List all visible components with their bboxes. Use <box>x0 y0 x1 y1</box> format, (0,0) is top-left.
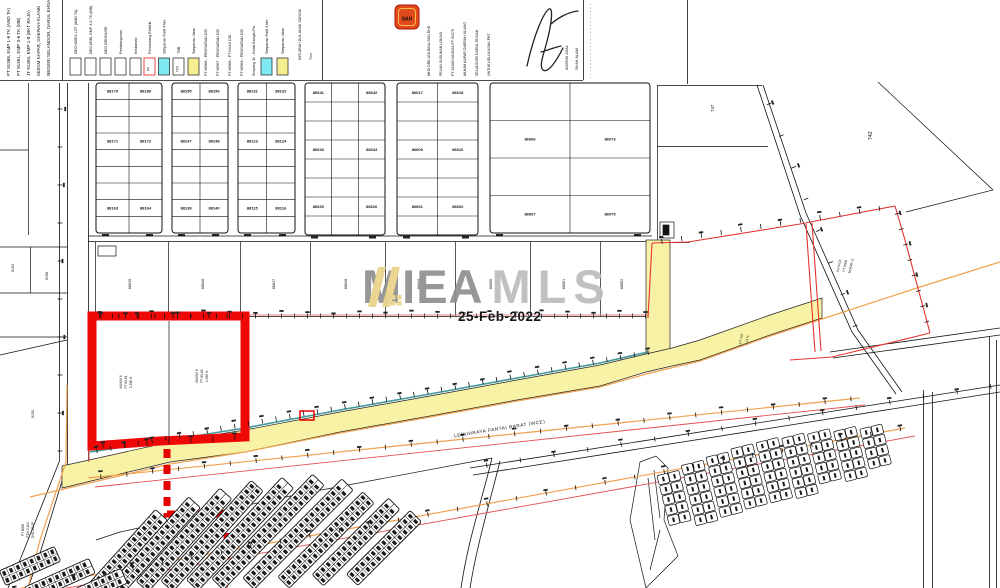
map-geometry <box>486 463 487 468</box>
lot-number: 86633 <box>313 147 325 152</box>
legend-caption: DEG AREL EMP 3-6 TK (MB) <box>89 6 93 54</box>
left-parcel-label: 9152 <box>31 410 35 418</box>
legend-caption: DEG+AREL LOT (AND TA) <box>74 10 78 54</box>
survey-annotation-mark <box>667 412 672 414</box>
lot-grid-block: 866178661886609866108660186602 <box>397 83 478 239</box>
map-line <box>878 82 993 212</box>
map-geometry <box>427 389 428 394</box>
lot-number: 88180 <box>140 89 152 94</box>
survey-annotation-mark <box>778 219 783 221</box>
map-geometry <box>721 230 722 235</box>
map-geometry <box>587 447 588 452</box>
survey-annotation-mark <box>602 477 607 480</box>
parcel-row-label: 86650 <box>489 279 493 290</box>
survey-annotation-mark <box>357 446 362 448</box>
survey-annotation-mark <box>135 312 139 314</box>
map-geometry <box>621 442 622 447</box>
survey-annotation-mark <box>661 465 666 468</box>
lot-number: 86634 <box>366 147 378 152</box>
survey-annotation-mark <box>539 309 543 311</box>
lot-grid-block: 881798818088171881728816388164 <box>96 83 162 237</box>
map-geometry <box>403 236 410 239</box>
survey-annotation-mark <box>551 450 556 452</box>
survey-annotation-mark <box>699 231 704 233</box>
lot-number: 86617 <box>412 90 424 95</box>
map-geometry <box>841 293 845 295</box>
survey-annotation-mark <box>149 310 153 312</box>
survey-annotation-mark <box>887 397 892 399</box>
map-geometry <box>554 452 555 457</box>
map-geometry <box>760 224 761 229</box>
map-line <box>663 225 669 235</box>
map-geometry <box>804 198 808 200</box>
subject-plot-left-label: PT 69-61 <box>124 375 128 388</box>
survey-annotation-mark <box>857 206 862 208</box>
parcel-row-label: 86652 <box>620 279 624 290</box>
map-geometry <box>496 234 503 237</box>
legend-caption: PT 66567 - PENGAIRAN DID <box>216 29 220 76</box>
map-geometry <box>317 409 318 414</box>
survey-annotation-mark <box>616 418 621 420</box>
legend-caption: Simpanan Jalan <box>192 28 196 54</box>
survey-annotation-mark <box>253 312 257 314</box>
survey-annotation-mark <box>753 418 758 420</box>
map-line <box>830 328 1000 352</box>
map-geometry <box>688 431 689 436</box>
legend-caption: PT 66566 - PENGAIRAN DID <box>204 29 208 76</box>
survey-annotation-mark <box>543 489 548 492</box>
lot-number: 88116 <box>275 205 287 210</box>
map-geometry <box>428 512 429 517</box>
survey-annotation-mark <box>207 312 211 314</box>
map-geometry <box>358 402 359 407</box>
survey-annotation-mark <box>565 311 569 313</box>
survey-annotation-mark <box>99 312 103 314</box>
legend-caption: UNTUK KELULUSAN PBT <box>487 32 491 76</box>
map-geometry <box>244 234 251 237</box>
map-geometry <box>820 215 821 220</box>
survey-annotation-mark <box>305 449 310 451</box>
legend-yellow-box <box>277 58 288 75</box>
survey-annotation-mark <box>590 356 595 359</box>
map-line <box>833 335 1000 358</box>
subject-plot-left-label: 1.338 H. <box>129 376 133 388</box>
map-line <box>895 206 930 333</box>
lot-number: 88156 <box>208 89 220 94</box>
survey-annotation-mark <box>314 406 319 409</box>
legend-caption: Simpanan Parit 4 Me. <box>265 19 269 54</box>
survey-annotation-mark <box>101 441 105 443</box>
survey-annotation-mark <box>452 383 457 386</box>
survey-annotation-mark <box>846 290 849 295</box>
map-geometry <box>469 382 470 387</box>
map-geometry <box>990 384 991 389</box>
survey-annotation-mark <box>231 419 236 422</box>
map-geometry <box>822 410 823 415</box>
survey-annotation-mark <box>63 183 65 187</box>
map-geometry <box>800 218 801 223</box>
parcel-row-label: 86651 <box>562 279 566 290</box>
map-geometry <box>828 261 832 263</box>
survey-annotation-mark <box>342 401 347 404</box>
map-line <box>763 85 902 392</box>
survey-annotation-mark <box>305 311 309 313</box>
lot-number: 88163 <box>107 205 119 210</box>
map-geometry <box>303 411 304 416</box>
survey-annotation-mark <box>591 312 595 314</box>
survey-annotation-mark <box>287 410 292 413</box>
map-geometry <box>605 480 606 485</box>
map-geometry <box>520 458 521 463</box>
legend-caption: Tmn. <box>309 52 313 60</box>
legend-caption: SHAH ALAM <box>575 48 579 70</box>
parcel-row-label: 86649 <box>417 279 421 290</box>
legend-swatch-label: TKX <box>176 65 180 72</box>
map-geometry <box>345 404 346 409</box>
legend-caption: Simpanan Parit 4 Me. <box>163 19 167 54</box>
east-parcel-label: MUKIM 12 <box>847 258 854 274</box>
survey-annotation-mark <box>144 438 148 440</box>
lot-number: 88171 <box>107 139 119 144</box>
legend-caption: SELANGOR DARUL EHSAN <box>475 29 479 76</box>
map-geometry <box>816 230 820 232</box>
lot-number: 88164 <box>140 205 152 210</box>
parcel-row-label: 86645 <box>128 279 132 290</box>
map-geometry <box>289 414 290 419</box>
survey-annotation-mark <box>188 435 192 437</box>
survey-annotation-mark <box>202 461 207 463</box>
map-geometry <box>487 501 488 506</box>
legend-caption: MUKIM KAPAR DAERAH KLANG <box>463 22 467 76</box>
map-line <box>757 85 896 394</box>
legend-caption: PT 91361, EMP 3-6 TK (MB) <box>16 17 21 76</box>
map-geometry <box>102 234 109 237</box>
map-geometry <box>372 399 373 404</box>
map-geometry <box>369 236 376 239</box>
legend-caption: Simpang 11 - Kedai Bangku Pa. <box>252 25 256 76</box>
survey-annotation-mark <box>507 370 512 373</box>
legend-swatch-box <box>85 58 96 75</box>
legend-caption: KIRI ARAH DUL ANAK SUNGAI <box>298 9 302 60</box>
survey-annotation-mark <box>564 425 569 427</box>
map-geometry <box>400 394 401 399</box>
lot-number: 88172 <box>140 139 152 144</box>
map-geometry <box>634 475 635 480</box>
survey-annotation-mark <box>253 455 258 457</box>
lot-number: 86075 <box>604 212 616 217</box>
map-geometry <box>207 429 208 434</box>
survey-annotation-mark <box>425 509 430 512</box>
legend-caption: Pencawang Elektrik <box>148 21 152 54</box>
survey-annotation-mark <box>177 432 182 435</box>
lot-number: 88124 <box>275 139 287 144</box>
survey-annotation-mark <box>62 259 64 263</box>
map-geometry <box>413 392 414 397</box>
lot-number: 88131 <box>247 89 259 94</box>
legend-caption: MUKIM KAPAR, DAERAH KLANG <box>36 5 41 76</box>
map-geometry <box>879 206 880 211</box>
lot-number: 88155 <box>180 89 192 94</box>
map-geometry <box>546 491 547 496</box>
parcel-row-label: 86647 <box>272 279 276 290</box>
survey-annotation-mark <box>425 387 430 390</box>
lot-742-label: 742 <box>868 131 874 140</box>
survey-annotation-mark <box>618 438 623 440</box>
red-stamp-seal: SAH <box>395 5 419 29</box>
subject-plot-right-label: MUKIM 6 <box>195 369 199 383</box>
lot-number: 86073 <box>604 137 616 142</box>
subject-plot-outline <box>92 316 245 446</box>
survey-annotation-mark <box>817 211 822 213</box>
lot-number: 88115 <box>247 205 259 210</box>
survey-annotation-mark <box>357 311 361 313</box>
legend-caption: DEG DRHOUSE <box>104 26 108 54</box>
legend-caption: PT 91368 HINGGA PT 91375 <box>451 29 455 76</box>
map-geometry <box>331 407 332 412</box>
map-geometry <box>890 400 891 405</box>
map-geometry <box>516 496 517 501</box>
lot-number: 88179 <box>107 89 119 94</box>
lot-number: 88148 <box>208 139 220 144</box>
map-line <box>0 340 67 355</box>
bottom-right-lot-grid <box>655 412 895 532</box>
legend-caption: Kediaman <box>134 37 138 54</box>
survey-annotation-mark <box>771 100 774 105</box>
survey-annotation-mark <box>909 241 912 246</box>
survey-annotation-mark <box>64 107 66 111</box>
lot-number: 86642 <box>366 90 378 95</box>
survey-annotation-mark <box>513 311 517 313</box>
lot-747-label: 747 <box>710 104 715 112</box>
survey-annotation-mark <box>954 388 959 390</box>
map-geometry <box>455 384 456 389</box>
map-line <box>98 246 116 256</box>
legend-cyan-box <box>159 58 170 75</box>
subject-plot-left-label: MUKIM 6 <box>119 375 123 389</box>
map-geometry <box>457 507 458 512</box>
survey-annotation-mark <box>738 223 743 225</box>
survey-annotation-mark <box>150 467 155 469</box>
survey-annotation-mark <box>123 312 127 314</box>
survey-annotation-mark <box>771 403 776 405</box>
legend-swatch-box <box>130 58 141 75</box>
survey-annotation-mark <box>535 366 540 369</box>
survey-annotation-mark <box>397 392 402 395</box>
map-geometry <box>178 234 185 237</box>
survey-annotation-mark <box>822 397 827 399</box>
map-geometry <box>681 236 682 241</box>
survey-annotation-mark <box>232 432 236 434</box>
survey-annotation-mark <box>797 163 800 168</box>
lot-number: 86641 <box>313 90 325 95</box>
map-geometry <box>262 419 263 424</box>
left-parcel-label: 9156 <box>45 272 49 280</box>
survey-annotation-mark <box>719 406 724 408</box>
map-geometry <box>482 379 483 384</box>
signature <box>527 9 578 71</box>
survey-annotation-mark <box>820 409 825 411</box>
survey-annotation-mark <box>227 311 231 313</box>
legend-caption: Pembangunan <box>119 30 123 54</box>
map-geometry <box>780 221 781 226</box>
survey-annotation-mark <box>204 427 209 430</box>
lot-number: 86610 <box>452 147 464 152</box>
legend-swatch-box <box>70 58 81 75</box>
map-geometry <box>441 387 442 392</box>
map-geometry <box>791 166 795 168</box>
survey-annotation-mark <box>201 310 205 312</box>
lot-grid-block: 86066860738606786075 <box>490 83 650 237</box>
map-geometry <box>310 533 311 538</box>
lot-number: 86618 <box>452 90 464 95</box>
left-parcel-label: 9154 <box>11 264 15 272</box>
yellow-road-reserve <box>62 240 822 488</box>
map-geometry <box>782 448 783 453</box>
map-line <box>652 206 895 243</box>
map-geometry <box>664 469 665 474</box>
survey-annotation-mark <box>171 312 175 314</box>
terrace-lot-strips <box>0 474 421 588</box>
legend-caption: Simpanan Jalan <box>281 28 285 54</box>
survey-annotation-mark <box>897 424 902 427</box>
survey-annotation-mark <box>643 311 647 313</box>
parcel-row-label: 86648 <box>344 279 348 290</box>
stamp-label: SAH <box>402 17 413 23</box>
lot-number: 86601 <box>412 204 424 209</box>
map-line <box>648 478 655 540</box>
lot-grid-block: 881558815688147881488813988140 <box>172 83 228 237</box>
map-geometry <box>701 233 702 238</box>
legend-cyan-box <box>261 58 272 75</box>
survey-annotation-mark <box>562 361 567 364</box>
map-geometry <box>234 424 235 429</box>
survey-annotation-mark <box>383 312 387 314</box>
parcel-row-label: 86646 <box>201 279 205 290</box>
survey-annotation-mark <box>435 311 439 313</box>
lot-number: 86626 <box>366 204 378 209</box>
map-geometry <box>654 437 655 442</box>
map-geometry <box>212 234 219 237</box>
map-geometry <box>741 227 742 232</box>
lot-number: 88140 <box>208 205 220 210</box>
survey-annotation-mark <box>487 310 491 312</box>
survey-annotation-mark <box>409 440 414 442</box>
survey-annotation-mark <box>480 378 485 381</box>
map-line <box>650 530 660 570</box>
pt8008-label: 2HA-1R-0P <box>31 522 35 538</box>
map-geometry <box>276 416 277 421</box>
cadastral-map: SAH <box>0 0 1000 588</box>
survey-annotation-mark <box>175 312 179 314</box>
lot-number: 86625 <box>313 204 325 209</box>
map-line <box>790 333 930 360</box>
survey-annotation-mark <box>63 335 65 339</box>
map-geometry <box>398 517 399 522</box>
survey-annotation-mark <box>409 310 413 312</box>
survey-annotation-mark <box>618 352 623 355</box>
subject-plot-highlight <box>92 316 245 446</box>
legend-swatch-box <box>100 58 111 75</box>
subject-plot-right-label: PT 69-62 <box>200 369 204 382</box>
pt8008-label: PT 8008 <box>21 524 25 536</box>
pt8008-label: PZM 5,114 <box>26 522 30 538</box>
map-geometry <box>146 234 153 237</box>
legend-caption: TNB <box>177 46 181 54</box>
lot-number: 86067 <box>524 212 536 217</box>
lot-number: 88132 <box>275 89 287 94</box>
map-geometry <box>462 236 469 239</box>
map-geometry <box>900 426 901 431</box>
survey-annotation-mark <box>279 310 283 312</box>
legend-caption: NEGERI SELANGOR, DARUL EHSAN <box>46 0 51 76</box>
map-geometry <box>279 234 286 237</box>
map-geometry <box>575 485 576 490</box>
lot-number: 86602 <box>452 204 464 209</box>
lot-grid-block: 866418664286633866348662586626 <box>305 83 385 239</box>
map-geometry <box>789 416 790 421</box>
survey-map-page: SAH <box>0 0 1000 588</box>
legend-yellow-box <box>188 58 199 75</box>
map-line <box>461 458 492 588</box>
lot-grid-tilted <box>655 412 895 532</box>
legend-caption: JT 91360, EMP 1-8 (BKT RAJA) <box>26 10 31 76</box>
map-geometry <box>311 236 318 239</box>
survey-annotation-mark <box>461 312 465 314</box>
survey-annotation-mark <box>820 227 823 232</box>
legend-caption: PELAN SUSUNAN LOKASI <box>439 32 443 76</box>
lot-grid-block: 881318813288123881248811588116 <box>238 83 295 237</box>
map-geometry <box>722 426 723 431</box>
lot-number: 88139 <box>180 205 192 210</box>
legend-caption: PT 91368, EMP 1-6 TK (AND TA) <box>6 8 11 76</box>
legend-swatch-box <box>115 58 126 75</box>
survey-annotation-mark <box>259 415 264 418</box>
lot-number: 88123 <box>247 139 259 144</box>
survey-annotation-mark <box>62 411 64 415</box>
map-geometry <box>386 397 387 402</box>
map-geometry <box>634 234 641 237</box>
map-geometry <box>755 421 756 426</box>
lot-grid-blocks: 8817988180881718817288163881648815588156… <box>96 83 650 239</box>
survey-annotation-mark <box>331 312 335 314</box>
legend-caption: PT 66568 - PT KHAS DID <box>228 34 232 76</box>
subject-plot-right-label: 1.338 H. <box>205 370 209 382</box>
survey-annotation-mark <box>925 303 928 308</box>
survey-annotation-mark <box>686 430 691 432</box>
survey-annotation-mark <box>370 396 375 399</box>
lot-number: 86066 <box>524 137 536 142</box>
legend-pe-box <box>144 58 155 75</box>
map-geometry <box>221 426 222 431</box>
lot-number: 86609 <box>412 147 424 152</box>
map-geometry <box>634 352 635 357</box>
legend-caption: PT 66569 - PENGAIRAN DID <box>240 29 244 76</box>
legend-caption: MHD DRE AYA BINA SDN BHD <box>427 25 431 76</box>
legend-caption: AGENSI ASAL <box>565 45 569 70</box>
lot-number: 88147 <box>180 139 192 144</box>
survey-annotation-mark <box>484 497 489 500</box>
survey-annotation-mark <box>617 310 621 312</box>
